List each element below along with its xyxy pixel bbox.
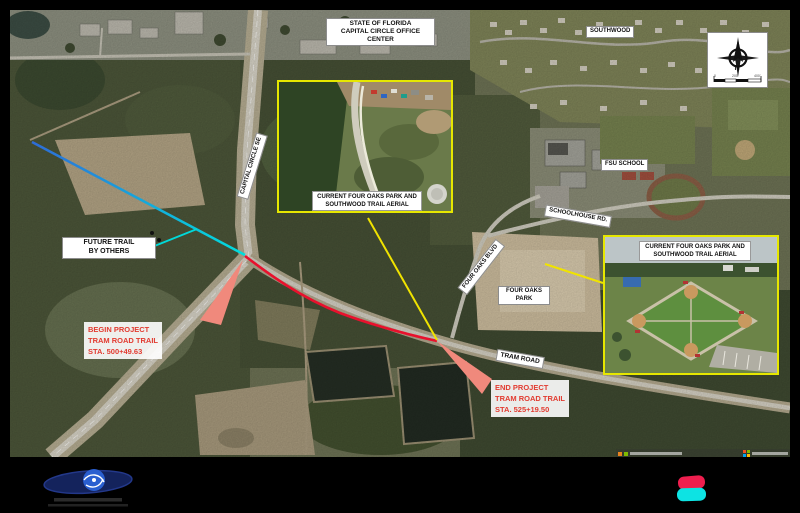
- label-capital-circle-office-center: STATE OF FLORIDA CAPITAL CIRCLE OFFICE C…: [326, 18, 435, 46]
- inset1-caption: CURRENT FOUR OAKS PARK AND SOUTHWOOD TRA…: [312, 191, 422, 211]
- map-provider-squares-icon: [624, 452, 628, 456]
- survey-point: [150, 231, 154, 235]
- sheet-footer: [0, 457, 800, 513]
- label-four-oaks-park: FOUR OAKS PARK: [498, 286, 550, 305]
- inset1-leader: [368, 218, 437, 340]
- brand-bar-cyan: [677, 487, 706, 501]
- attribution-text-blur: [752, 452, 788, 455]
- label-fsu-school: FSU SCHOOL: [601, 159, 648, 171]
- callout-station: STA. 500+49.63: [88, 347, 142, 356]
- inset-photo-park-aerial: CURRENT FOUR OAKS PARK AND SOUTHWOOD TRA…: [603, 235, 779, 375]
- label-line: PARK: [516, 296, 533, 302]
- scale-tick: 200': [732, 74, 739, 78]
- callout-begin-project: BEGIN PROJECT TRAM ROAD TRAIL STA. 500+4…: [84, 322, 162, 359]
- end-leader: [437, 341, 492, 394]
- project-exhibit: STATE OF FLORIDA CAPITAL CIRCLE OFFICE C…: [0, 0, 800, 513]
- caption-line: SOUTHWOOD TRAIL AERIAL: [653, 252, 736, 258]
- callout-future-trail: FUTURE TRAIL BY OTHERS: [62, 237, 156, 259]
- north-arrow-and-scale: N 0 200' 400': [707, 32, 768, 88]
- compass-n-label: N: [735, 65, 740, 72]
- firm-name-text-blur: [54, 498, 122, 502]
- caption-line: CURRENT FOUR OAKS PARK AND: [645, 244, 745, 250]
- survey-point: [157, 238, 161, 242]
- callout-end-project: END PROJECT TRAM ROAD TRAIL STA. 525+19.…: [491, 380, 569, 417]
- firm-tagline-text-blur: [48, 504, 128, 507]
- project-trail-line: [245, 256, 437, 341]
- callout-line: BEGIN PROJECT: [88, 325, 149, 334]
- map-provider-squares-icon: [618, 452, 622, 456]
- callout-station: STA. 525+19.50: [495, 405, 549, 414]
- north-arrow-icon: N 0 200' 400': [708, 33, 767, 87]
- inset2-leader: [545, 264, 603, 283]
- label-line: BY OTHERS: [89, 248, 130, 255]
- callout-line: TRAM ROAD TRAIL: [88, 336, 158, 345]
- caption-line: CURRENT FOUR OAKS PARK AND: [317, 194, 417, 200]
- label-southwood: SOUTHWOOD: [586, 26, 634, 38]
- scale-bar-icon: 0 200' 400': [714, 74, 761, 82]
- begin-leader: [200, 260, 243, 325]
- scale-tick: 400': [754, 74, 761, 78]
- label-line: FUTURE TRAIL: [84, 239, 135, 246]
- label-line: CAPITAL CIRCLE OFFICE CENTER: [341, 28, 420, 43]
- inset2-caption: CURRENT FOUR OAKS PARK AND SOUTHWOOD TRA…: [639, 241, 751, 261]
- engineering-firm-logo: [36, 462, 140, 510]
- callout-line: TRAM ROAD TRAIL: [495, 394, 565, 403]
- brand-mark-pink-cyan: [677, 476, 707, 504]
- attribution-text-blur: [630, 452, 682, 455]
- microsoft-logo-icon: [743, 450, 750, 457]
- aerial-map: STATE OF FLORIDA CAPITAL CIRCLE OFFICE C…: [0, 0, 800, 513]
- caption-line: SOUTHWOOD TRAIL AERIAL: [325, 202, 408, 208]
- label-line: STATE OF FLORIDA: [350, 20, 412, 27]
- label-line: FOUR OAKS: [506, 288, 542, 294]
- future-trail-leader: [152, 229, 197, 247]
- inset-photo-trail-aerial: CURRENT FOUR OAKS PARK AND SOUTHWOOD TRA…: [277, 80, 453, 213]
- callout-line: END PROJECT: [495, 383, 548, 392]
